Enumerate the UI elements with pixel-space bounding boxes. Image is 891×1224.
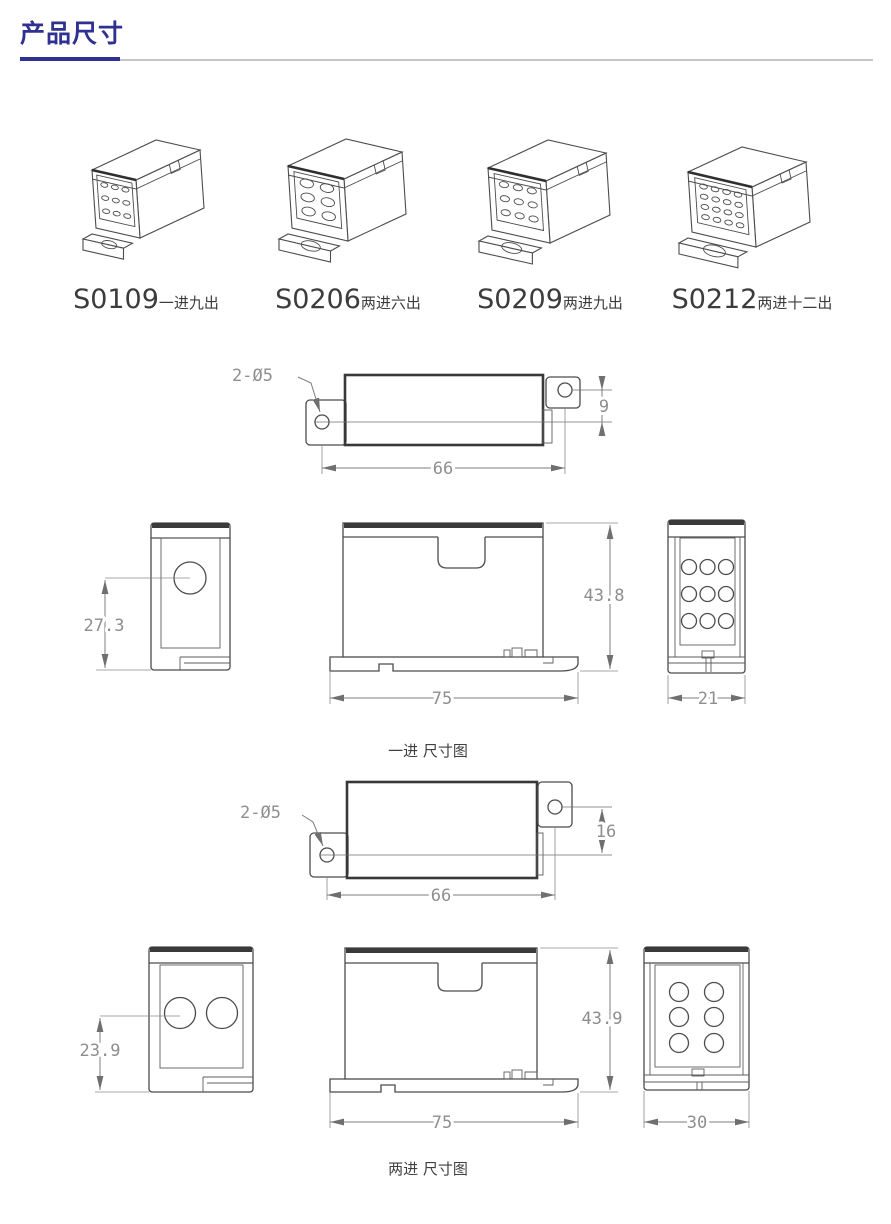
product-model: S0206 (275, 284, 361, 315)
front-view-two-in: 43.9 75 (330, 948, 622, 1133)
product-label: S0206两进六出 (275, 284, 421, 315)
product-row: S0109一进九出S0206两进六出S0209两进九出S0212两进十二出 (45, 90, 855, 315)
dim-offset-9: 9 (599, 376, 609, 436)
side-view-one-in: 27.3 (84, 523, 230, 670)
dim-width-value: 75 (432, 689, 452, 709)
end-view-one-in: 21 (668, 520, 745, 709)
dim-depth-value: 30 (687, 1113, 707, 1133)
dim-hole-label: 2-Ø5 (232, 366, 273, 386)
mount-hole-right (558, 383, 572, 397)
dim-width-value: 75 (432, 1113, 452, 1133)
dim-width-75: 75 (330, 1093, 578, 1133)
dimension-drawing-two-in: 2-Ø5 66 16 23.9 (70, 780, 790, 1145)
dim-length-value: 66 (431, 886, 451, 906)
output-hole-grid (682, 560, 734, 629)
body-outline (345, 375, 543, 445)
mount-tab-left (306, 400, 346, 445)
dim-offset-value: 9 (599, 397, 609, 417)
din-clip-detail (504, 1070, 553, 1085)
dim-depth-value: 21 (698, 689, 718, 709)
front-view-one-in: 43.8 75 (330, 523, 624, 709)
dim-hole-height: 23.9 (80, 1016, 180, 1092)
product-iso-S0212 (652, 90, 852, 278)
product-desc: 两进十二出 (757, 294, 832, 312)
din-rail-notch (438, 963, 482, 991)
dim-length-66: 66 (322, 408, 565, 479)
product-label: S0212两进十二出 (672, 284, 833, 315)
product-S0212: S0212两进十二出 (651, 90, 853, 315)
product-model: S0209 (477, 284, 563, 315)
product-S0109: S0109一进九出 (45, 90, 247, 315)
dim-height-439: 43.9 (540, 948, 622, 1092)
dim-hole-height: 27.3 (84, 578, 190, 670)
product-S0206: S0206两进六出 (247, 90, 449, 315)
mount-hole-right (548, 800, 562, 814)
dim-hole-label: 2-Ø5 (240, 803, 281, 823)
product-iso-S0109 (46, 90, 246, 278)
caption-one-in: 一进 尺寸图 (0, 740, 856, 761)
dim-hole-height-value: 23.9 (80, 1041, 121, 1061)
product-label: S0209两进九出 (477, 284, 623, 315)
base-flange (330, 1079, 578, 1092)
product-iso-S0206 (248, 90, 448, 278)
top-view-one-in: 2-Ø5 66 9 (232, 366, 612, 479)
dim-length-66: 66 (327, 827, 555, 906)
end-view-two-in: 30 (644, 947, 749, 1133)
side-view-two-in: 23.9 (80, 947, 253, 1092)
body-outline (347, 782, 537, 878)
dim-offset-value: 16 (596, 822, 616, 842)
top-view-two-in: 2-Ø5 66 16 (240, 782, 616, 906)
product-iso-S0209 (450, 90, 650, 278)
product-desc: 两进六出 (361, 294, 421, 312)
dim-height-value: 43.9 (582, 1009, 623, 1029)
dim-hole-height-value: 27.3 (84, 616, 125, 636)
title-underline-gray (120, 59, 873, 61)
dim-length-value: 66 (433, 459, 453, 479)
mount-tab-right (538, 782, 572, 827)
product-model: S0109 (73, 284, 159, 315)
caption-two-in: 两进 尺寸图 (0, 1158, 856, 1179)
dim-offset-16: 16 (596, 809, 616, 853)
dim-depth-21: 21 (668, 675, 745, 709)
dim-depth-30: 30 (644, 1091, 749, 1133)
product-label: S0109一进九出 (73, 284, 219, 315)
base-flange (330, 657, 578, 671)
input-hole-2 (207, 998, 238, 1029)
mount-tab-right (546, 377, 580, 408)
product-desc: 一进九出 (159, 294, 219, 312)
din-clip-detail (504, 648, 553, 663)
dim-height-value: 43.8 (584, 586, 625, 606)
product-desc: 两进九出 (563, 294, 623, 312)
page-title: 产品尺寸 (20, 14, 124, 50)
body-step-right (543, 410, 552, 443)
dim-width-75: 75 (330, 672, 578, 709)
product-model: S0212 (672, 284, 758, 315)
dim-height-438: 43.8 (546, 523, 624, 671)
input-hole-1 (165, 998, 196, 1029)
din-rail-notch (438, 537, 485, 568)
dimension-drawing-one-in: 2-Ø5 66 9 27.3 (70, 350, 790, 722)
dim-hole-callout: 2-Ø5 (232, 366, 320, 412)
title-underline-accent (20, 57, 120, 61)
product-S0209: S0209两进九出 (449, 90, 651, 315)
output-hole-grid (670, 983, 724, 1053)
